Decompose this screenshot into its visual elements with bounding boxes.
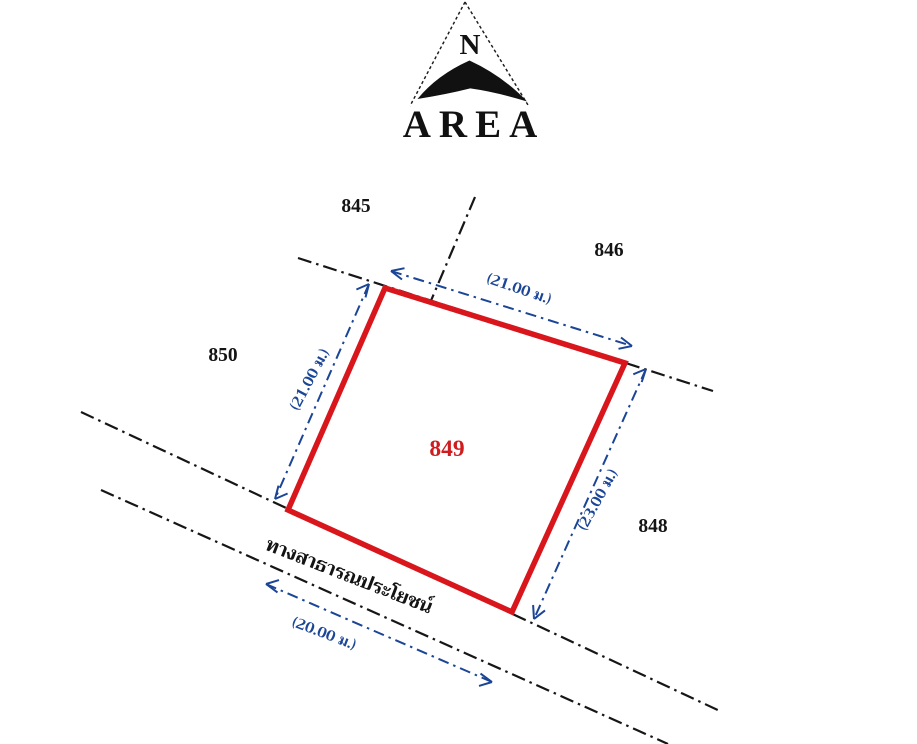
svg-text:845: 845 <box>341 196 371 217</box>
svg-text:AREA: AREA <box>403 103 546 146</box>
svg-text:N: N <box>460 29 481 61</box>
svg-text:848: 848 <box>638 516 668 537</box>
svg-text:849: 849 <box>429 436 464 462</box>
svg-text:850: 850 <box>208 345 237 366</box>
svg-text:846: 846 <box>594 240 624 261</box>
